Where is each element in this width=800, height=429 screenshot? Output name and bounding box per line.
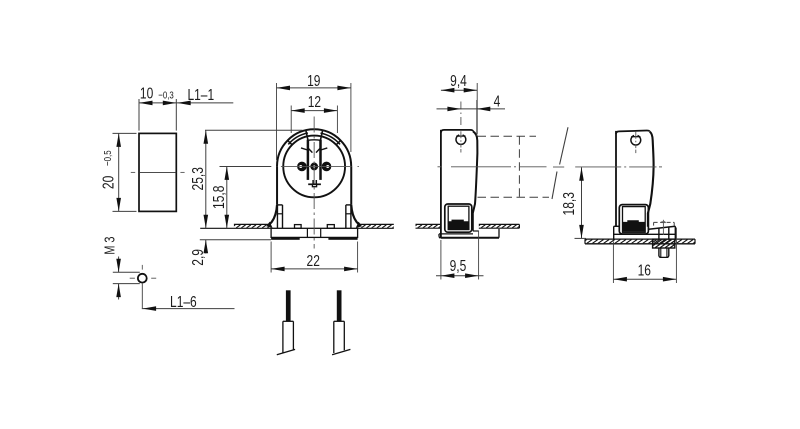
svg-text:25,3: 25,3: [188, 167, 206, 190]
svg-text:−0,5: −0,5: [102, 150, 113, 166]
svg-text:20: 20: [99, 176, 117, 189]
svg-text:18,3: 18,3: [559, 192, 577, 215]
svg-text:12: 12: [308, 92, 321, 110]
svg-text:15,8: 15,8: [209, 186, 227, 209]
svg-text:10: 10: [140, 84, 153, 102]
svg-text:L1–6: L1–6: [170, 292, 197, 310]
svg-text:M 3: M 3: [101, 237, 118, 255]
svg-text:19: 19: [307, 71, 320, 89]
svg-text:16: 16: [638, 261, 651, 279]
svg-text:L1–1: L1–1: [187, 85, 214, 103]
svg-text:9,5: 9,5: [450, 256, 467, 274]
svg-text:2,9: 2,9: [188, 249, 206, 266]
svg-text:−0,3: −0,3: [158, 90, 174, 101]
svg-text:4: 4: [494, 92, 501, 110]
svg-text:22: 22: [307, 251, 320, 269]
svg-text:9,4: 9,4: [450, 71, 467, 89]
